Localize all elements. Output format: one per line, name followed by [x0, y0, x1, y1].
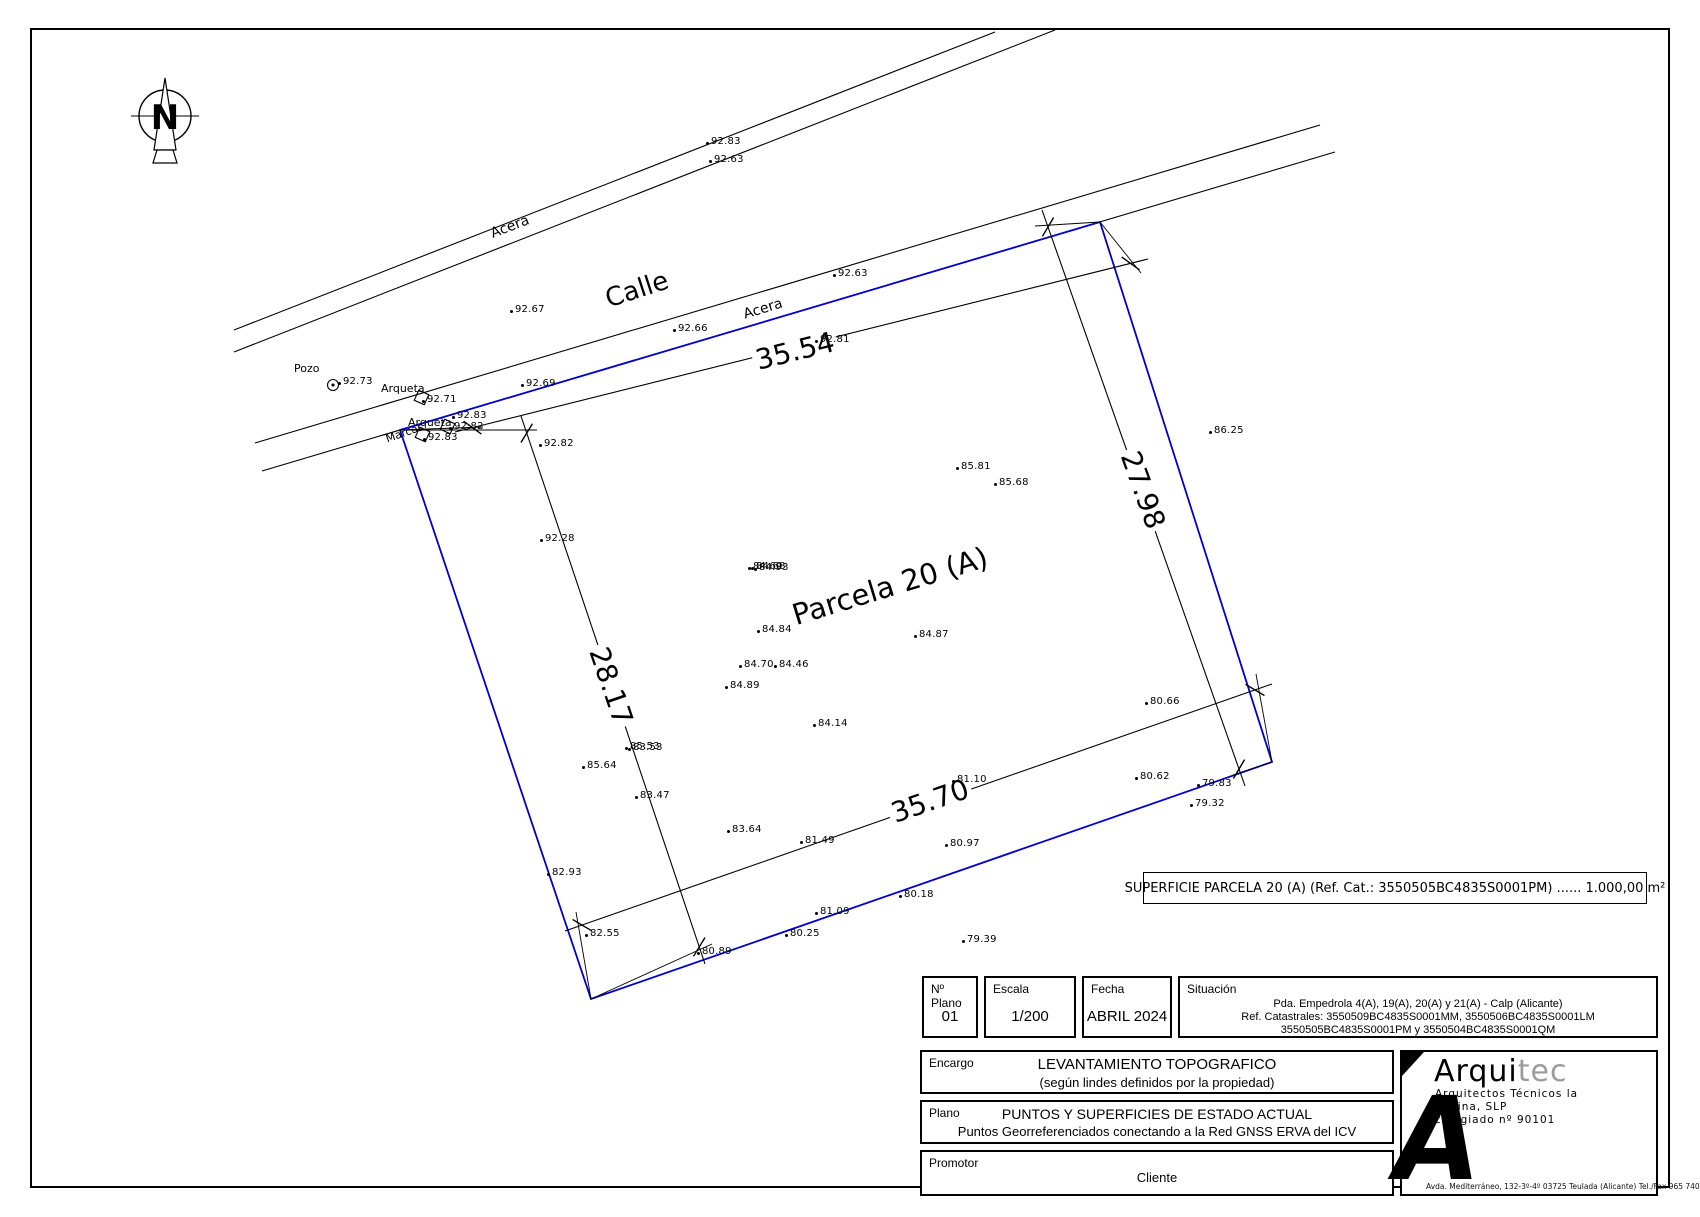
survey-point: 92.73	[338, 376, 373, 387]
survey-point: 84.46	[774, 659, 809, 670]
survey-point: 92.81	[815, 334, 850, 345]
plan-number-label: Nº Plano	[931, 982, 976, 1010]
date-value: ABRIL 2024	[1084, 1008, 1170, 1025]
point-marker	[725, 686, 728, 689]
north-letter: N	[151, 98, 179, 138]
situation-line2: Ref. Catastrales: 3550509BC4835S0001MM, …	[1180, 1011, 1656, 1023]
survey-point: 92.83	[423, 432, 458, 443]
point-marker	[757, 630, 760, 633]
point-marker	[833, 274, 836, 277]
point-marker	[914, 635, 917, 638]
titleblock-situation: Situación Pda. Empedrola 4(A), 19(A), 20…	[1178, 976, 1658, 1038]
point-marker	[709, 160, 712, 163]
survey-point: 92.28	[540, 533, 575, 544]
survey-point: 82.93	[547, 867, 582, 878]
survey-point: 83.64	[727, 824, 762, 835]
point-marker	[1145, 702, 1148, 705]
point-marker	[815, 912, 818, 915]
point-marker	[452, 416, 455, 419]
titleblock-commission: Encargo LEVANTAMIENTO TOPOGRAFICO (según…	[920, 1050, 1394, 1094]
point-marker	[338, 382, 341, 385]
survey-point: 92.63	[709, 154, 744, 165]
commission-line1: LEVANTAMIENTO TOPOGRAFICO	[922, 1056, 1392, 1073]
survey-point: 82.55	[585, 928, 620, 939]
scale-label: Escala	[993, 982, 1029, 996]
point-marker	[547, 873, 550, 876]
survey-point: 79.32	[1190, 798, 1225, 809]
situation-line3: 3550505BC4835S0001PM y 3550504BC4835S000…	[1180, 1024, 1656, 1036]
point-marker	[539, 444, 542, 447]
point-marker	[697, 952, 700, 955]
developer-value: Cliente	[922, 1170, 1392, 1185]
survey-point: 86.25	[1209, 425, 1244, 436]
point-marker	[952, 780, 955, 783]
survey-point: 92.67	[510, 304, 545, 315]
survey-point: 92.71	[422, 394, 457, 405]
survey-point: 84.14	[813, 718, 848, 729]
plan-number-value: 01	[924, 1008, 976, 1025]
survey-point: 84.70	[739, 659, 774, 670]
survey-point: 83.53	[628, 742, 663, 753]
point-marker	[449, 427, 452, 430]
point-marker	[956, 467, 959, 470]
point-marker	[774, 665, 777, 668]
logo-a-mark: A	[1384, 1081, 1490, 1197]
logo-address: Avda. Mediterráneo, 132-3º-4º 03725 Teul…	[1426, 1182, 1700, 1191]
point-marker	[510, 310, 513, 313]
point-marker	[815, 340, 818, 343]
commission-line2: (según lindes definidos por la propiedad…	[922, 1075, 1392, 1090]
point-marker	[1190, 804, 1193, 807]
plan-line2: Puntos Georreferenciados conectando a la…	[922, 1124, 1392, 1139]
survey-point: 80.25	[785, 928, 820, 939]
developer-label: Promotor	[929, 1156, 978, 1170]
point-marker	[521, 384, 524, 387]
situation-line1: Pda. Empedrola 4(A), 19(A), 20(A) y 21(A…	[1180, 998, 1656, 1010]
titleblock-date: Fecha ABRIL 2024	[1082, 976, 1172, 1038]
titleblock-scale: Escala 1/200	[984, 976, 1076, 1038]
point-marker	[739, 665, 742, 668]
survey-point: 84.84	[757, 624, 792, 635]
point-marker	[813, 724, 816, 727]
point-marker	[540, 539, 543, 542]
point-marker	[582, 766, 585, 769]
point-marker	[706, 142, 709, 145]
survey-point: 80.97	[945, 838, 980, 849]
survey-point: 92.83	[706, 136, 741, 147]
point-marker	[635, 796, 638, 799]
survey-point: 85.81	[956, 461, 991, 472]
point-marker	[962, 940, 965, 943]
survey-point: 92.83	[452, 410, 487, 421]
survey-point: 81.10	[952, 774, 987, 785]
survey-point: 92.69	[521, 378, 556, 389]
survey-point: 92.82	[449, 421, 484, 432]
feature-label: Pozo	[294, 362, 319, 375]
survey-point: 92.82	[539, 438, 574, 449]
point-marker	[800, 841, 803, 844]
survey-point: 85.68	[994, 477, 1029, 488]
point-marker	[945, 844, 948, 847]
survey-point: 92.66	[673, 323, 708, 334]
survey-plan-sheet: AceraCalleAcera Parcela 20 (A) N 35.5427…	[0, 0, 1700, 1217]
plan-line1: PUNTOS Y SUPERFICIES DE ESTADO ACTUAL	[922, 1106, 1392, 1122]
survey-point: 80.66	[1145, 696, 1180, 707]
point-marker	[423, 438, 426, 441]
titleblock-logo: Arquitec Arquitectos Técnicos la Marina,…	[1400, 1050, 1658, 1196]
survey-point: 80.89	[697, 946, 732, 957]
titleblock-developer: Promotor Cliente	[920, 1150, 1394, 1196]
survey-point: 84.93	[754, 562, 789, 573]
point-marker	[785, 934, 788, 937]
point-marker	[585, 934, 588, 937]
survey-point: 79.39	[962, 934, 997, 945]
point-marker	[994, 483, 997, 486]
situation-label: Situación	[1187, 982, 1236, 996]
survey-point: 79.83	[1197, 778, 1232, 789]
scale-value: 1/200	[986, 1008, 1074, 1025]
survey-point: 80.62	[1135, 771, 1170, 782]
survey-point: 84.87	[914, 629, 949, 640]
point-marker	[422, 400, 425, 403]
point-marker	[1209, 431, 1212, 434]
street-lines	[234, 30, 1335, 471]
survey-point: 92.63	[833, 268, 868, 279]
feature-label: Arqueta	[381, 382, 425, 395]
surface-note-box: SUPERFICIE PARCELA 20 (A) (Ref. Cat.: 35…	[1143, 872, 1647, 904]
survey-point: 83.47	[635, 790, 670, 801]
surface-note-text: SUPERFICIE PARCELA 20 (A) (Ref. Cat.: 35…	[1125, 881, 1666, 896]
point-marker	[1197, 784, 1200, 787]
point-marker	[628, 748, 631, 751]
point-marker	[673, 329, 676, 332]
titleblock-plan: Plano PUNTOS Y SUPERFICIES DE ESTADO ACT…	[920, 1100, 1394, 1144]
point-marker	[727, 830, 730, 833]
survey-point: 80.18	[899, 889, 934, 900]
survey-point: 81.49	[800, 835, 835, 846]
point-marker	[754, 568, 757, 571]
date-label: Fecha	[1091, 982, 1124, 996]
survey-point: 84.89	[725, 680, 760, 691]
point-marker	[1135, 777, 1138, 780]
titleblock-plan-number: Nº Plano 01	[922, 976, 978, 1038]
point-marker	[899, 895, 902, 898]
survey-point: 85.64	[582, 760, 617, 771]
survey-point: 81.09	[815, 906, 850, 917]
